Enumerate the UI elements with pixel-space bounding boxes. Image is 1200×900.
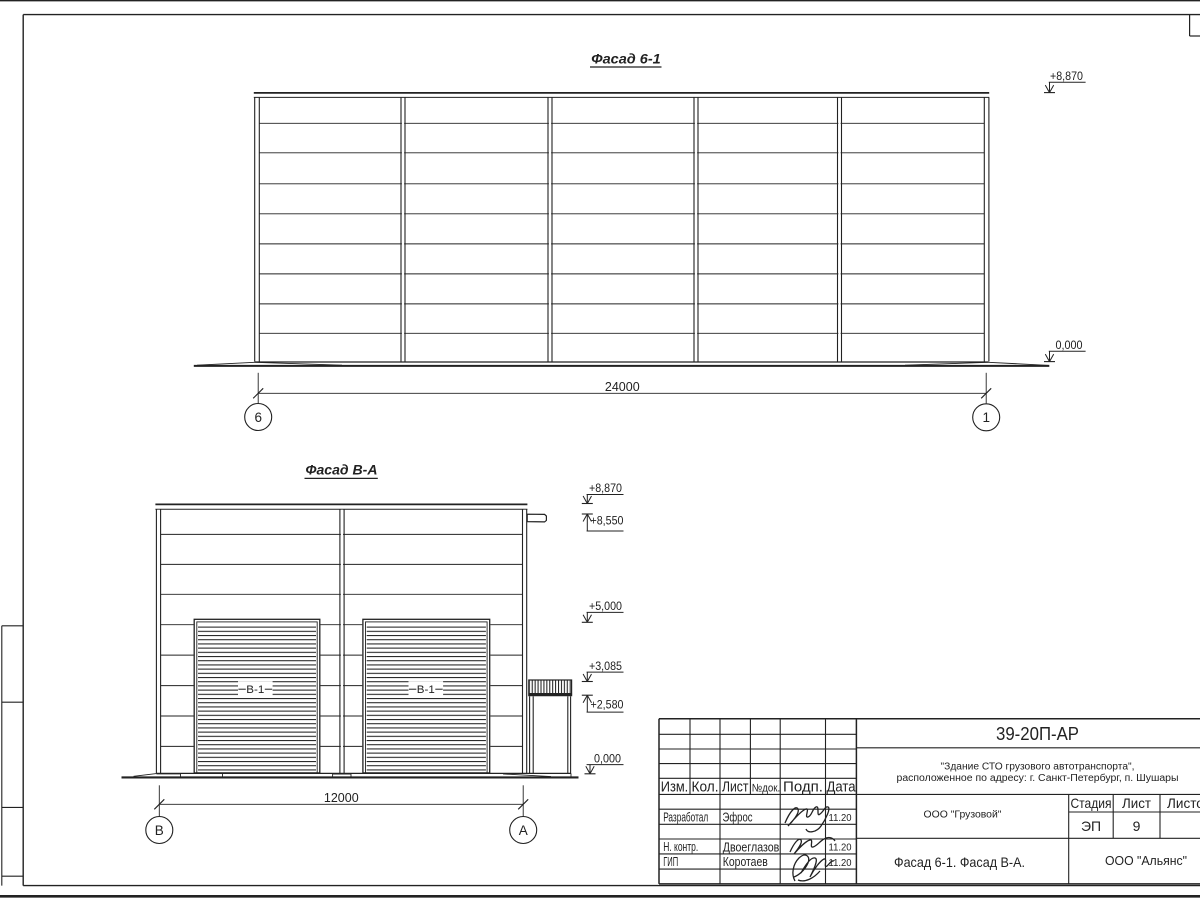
svg-text:№док.: №док.: [752, 782, 781, 794]
svg-text:ООО "Альянс": ООО "Альянс": [1105, 853, 1187, 868]
svg-text:+8,870: +8,870: [1050, 69, 1083, 83]
svg-text:Лист: Лист: [1122, 795, 1152, 811]
svg-text:В-1: В-1: [246, 684, 264, 696]
svg-text:1: 1: [982, 410, 990, 425]
svg-text:Фасад 6-1. Фасад В-А.: Фасад 6-1. Фасад В-А.: [894, 854, 1025, 870]
svg-text:39-20П-АР: 39-20П-АР: [996, 724, 1079, 744]
svg-text:+5,000: +5,000: [589, 599, 622, 613]
svg-text:24000: 24000: [605, 380, 640, 394]
svg-text:Изм.: Изм.: [661, 778, 689, 795]
svg-text:11.20: 11.20: [829, 842, 852, 854]
svg-text:Н. контр.: Н. контр.: [663, 839, 698, 854]
svg-text:11.20: 11.20: [829, 812, 852, 824]
svg-text:6: 6: [254, 410, 262, 425]
svg-text:Стадия: Стадия: [1071, 795, 1112, 811]
svg-text:В: В: [155, 823, 164, 838]
svg-text:Коротаев: Коротаев: [723, 854, 768, 869]
svg-text:+2,580: +2,580: [591, 698, 624, 712]
svg-text:В-1: В-1: [417, 684, 435, 696]
svg-text:Двоеглазов: Двоеглазов: [723, 839, 780, 854]
svg-text:0,000: 0,000: [594, 751, 621, 765]
svg-text:Дата: Дата: [827, 778, 857, 795]
svg-text:Кол.: Кол.: [692, 778, 719, 795]
svg-text:"Здание СТО грузового автотран: "Здание СТО грузового автотранспорта",: [941, 761, 1135, 772]
svg-text:расположенное по адресу: г. Са: расположенное по адресу: г. Санкт-Петерб…: [897, 772, 1179, 784]
svg-text:Эфрос: Эфрос: [723, 810, 753, 825]
svg-text:Подп.: Подп.: [783, 778, 823, 795]
svg-text:Разработал: Разработал: [663, 810, 708, 825]
svg-text:ООО "Грузовой": ООО "Грузовой": [924, 808, 1002, 820]
svg-text:Фасад В-А: Фасад В-А: [306, 462, 378, 478]
svg-text:Лист: Лист: [722, 778, 749, 795]
svg-text:+3,085: +3,085: [589, 659, 622, 673]
svg-text:12000: 12000: [324, 791, 359, 805]
svg-text:Фасад 6-1: Фасад 6-1: [591, 51, 661, 67]
svg-text:0,000: 0,000: [1056, 338, 1083, 352]
svg-text:11.20: 11.20: [829, 857, 852, 869]
svg-text:Листов: Листов: [1167, 795, 1200, 811]
svg-text:ГИП: ГИП: [663, 854, 678, 869]
svg-text:+8,870: +8,870: [589, 481, 622, 495]
svg-text:+8,550: +8,550: [591, 514, 624, 528]
svg-text:ЭП: ЭП: [1081, 818, 1101, 834]
svg-text:9: 9: [1133, 818, 1141, 834]
svg-text:А: А: [519, 823, 528, 838]
